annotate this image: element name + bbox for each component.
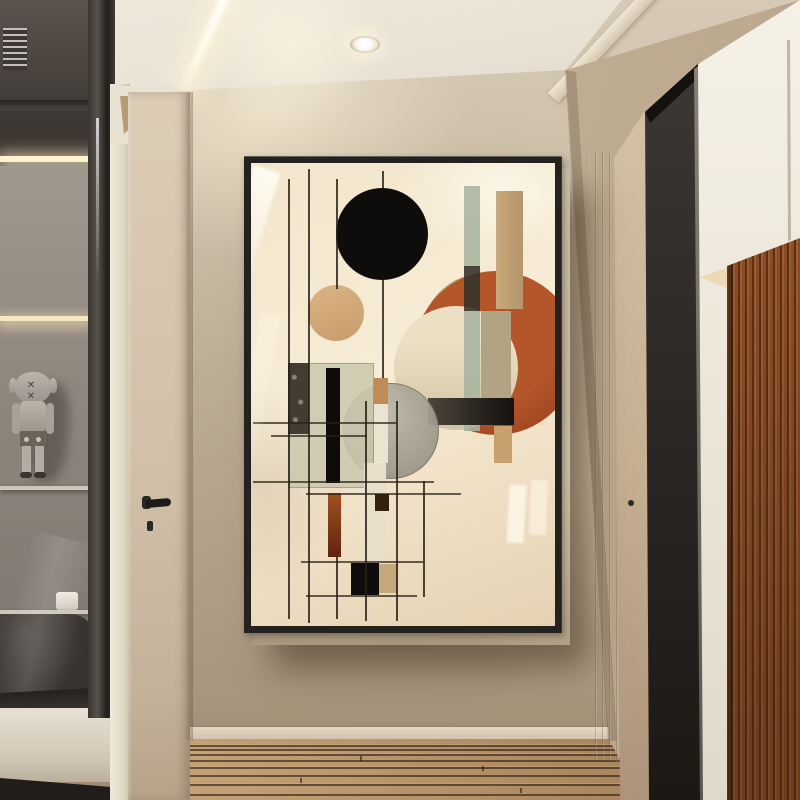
toy-arm [46,403,54,434]
toy-x-eyes: ✕ ✕ [17,380,49,402]
art-tan-stripe [496,191,523,309]
art-horizontal-line [253,481,434,483]
lit-shelf-edge [0,316,90,321]
art-pendant-white [374,404,388,463]
art-pendant-tan [374,378,388,404]
toy-button [36,437,41,442]
toy-arm [12,403,20,434]
frame-highlight [96,118,99,283]
door-trim [110,84,130,800]
glass-window-reflection [529,480,549,536]
art-vertical-line [336,557,338,619]
toy-leg [22,446,31,473]
art-sage-stripe [464,186,480,431]
toy-torso [20,401,46,433]
cabinet-led-strip [0,156,98,162]
hallway-photo: ✕ ✕ [0,0,800,800]
art-tan-column [494,426,512,463]
art-dark-segment [464,266,480,311]
art-vertical-line [396,401,398,621]
glass-window-reflection [506,485,526,544]
art-vertical-line [308,169,310,623]
toy-button [24,437,29,442]
art-horizontal-line [306,595,417,597]
art-beige-column [364,463,386,561]
art-black-bar [326,368,340,483]
art-charcoal-bar [428,398,514,425]
floor-plank-seam [360,756,362,761]
shelf-edge [0,486,90,490]
glass-glare-streak [251,165,280,321]
door [128,92,190,800]
art-horizontal-line [306,493,461,495]
floor-plank-seam [482,766,484,771]
toy-figure: ✕ ✕ [8,372,58,490]
cabinet-base [0,708,116,782]
art-brown-square [375,494,389,511]
wall-corner-shade [185,92,193,740]
art-khaki-rect [481,311,511,398]
floor-plank-seam [300,778,302,783]
right-door-knob [628,500,634,506]
glass-cabinet-interior: ✕ ✕ [0,166,92,716]
art-horizontal-line [271,435,367,437]
art-horizontal-line [253,422,396,424]
art-rust-bar [328,493,341,557]
toy-leg [35,446,44,473]
art-vertical-line [423,481,425,597]
glass-glare-streak [251,313,280,494]
toy-shoe [34,472,46,478]
toy-shoe [20,472,32,478]
art-vertical-line [365,401,367,621]
art-tan-circle [308,285,364,341]
floor-plank-seam [520,788,522,793]
abstract-artwork [251,163,555,626]
art-vertical-line [336,179,338,289]
door-keyhole [147,521,153,531]
art-black-circle [336,188,428,280]
cabinet-groove [0,100,100,110]
framed-art-poster [244,156,562,633]
art-vertical-line [288,179,290,619]
art-horizontal-line [301,561,423,563]
recessed-downlight [350,36,380,53]
vent-grille [3,28,27,70]
